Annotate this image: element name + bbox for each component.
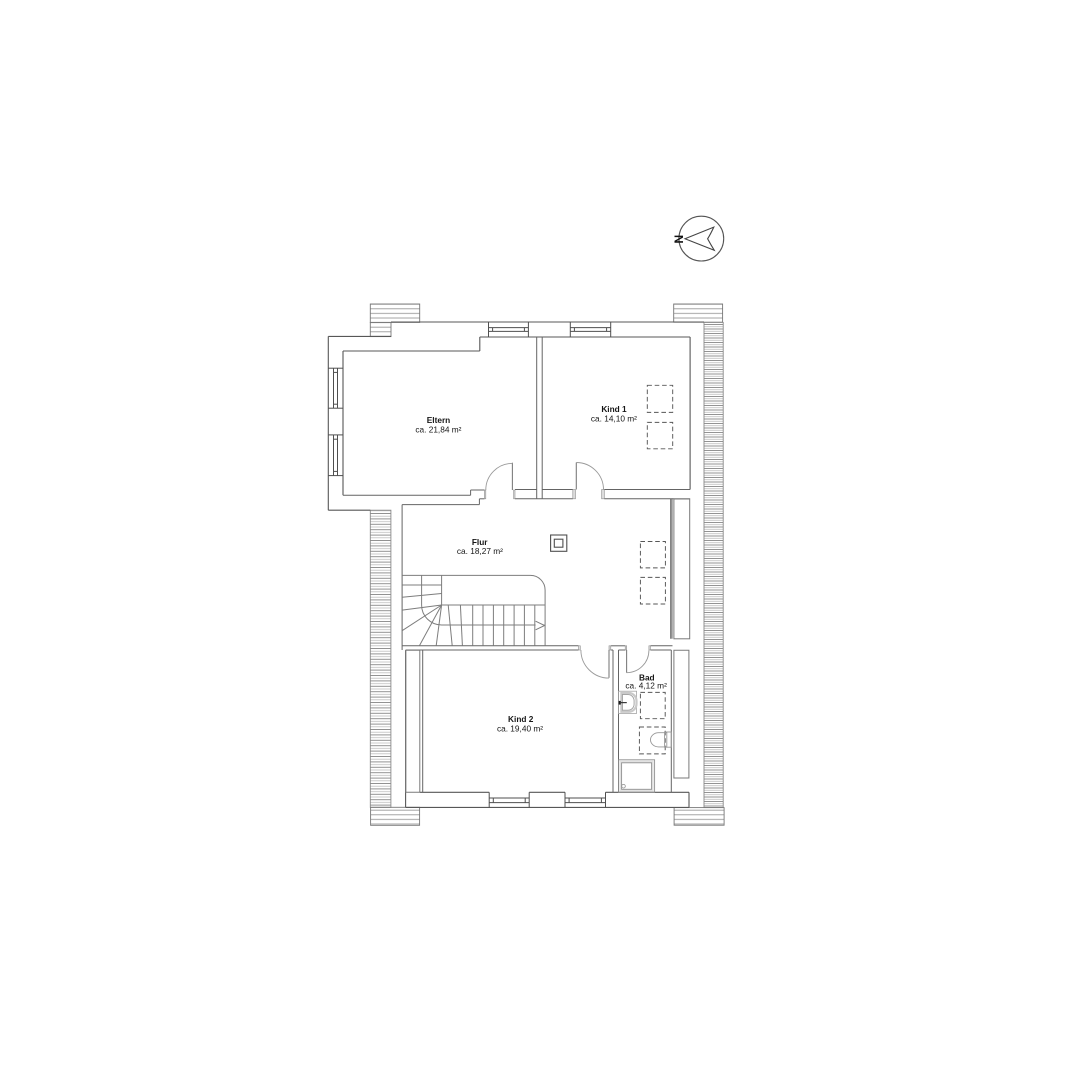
- svg-text:N: N: [672, 235, 686, 244]
- svg-text:ca. 4,12 m²: ca. 4,12 m²: [625, 681, 667, 691]
- svg-text:ca. 19,40 m²: ca. 19,40 m²: [497, 724, 543, 734]
- svg-text:ca. 18,27 m²: ca. 18,27 m²: [457, 546, 503, 556]
- svg-text:ca. 21,84 m²: ca. 21,84 m²: [415, 424, 461, 434]
- svg-text:ca. 14,10 m²: ca. 14,10 m²: [591, 414, 637, 424]
